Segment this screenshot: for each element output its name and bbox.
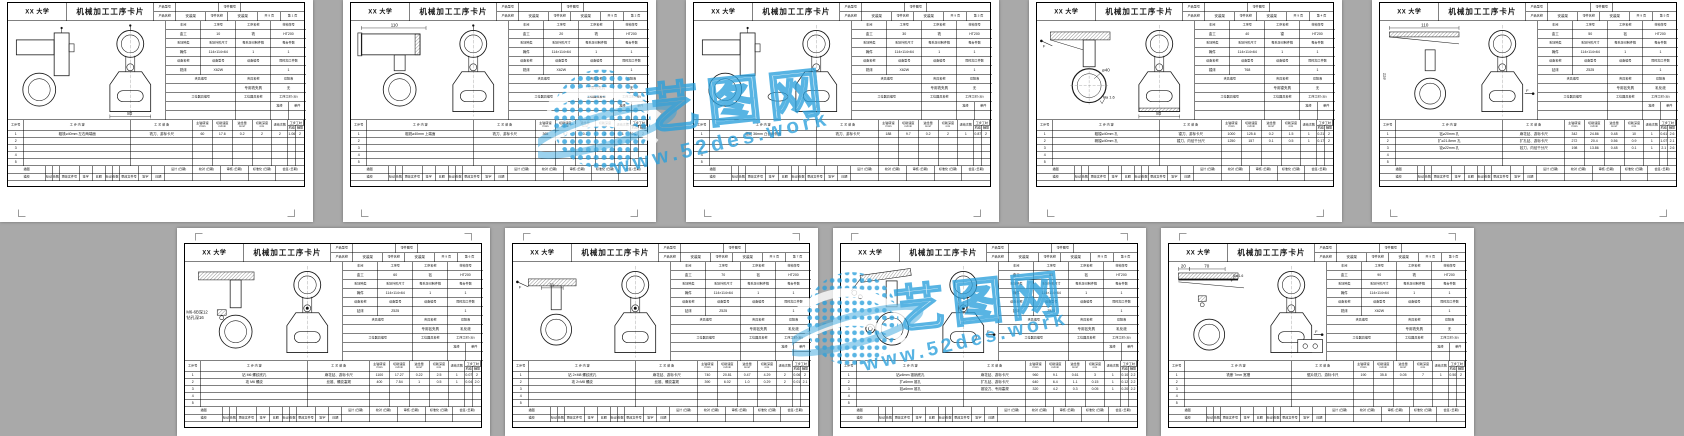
- step-passes: [1644, 159, 1660, 166]
- fixture-no-label: 夹具编号: [999, 316, 1069, 325]
- step-machine: 2.1: [1660, 145, 1668, 152]
- op-no-label: 工序号: [378, 262, 413, 271]
- standard-date-label: 标准化 (日期): [1277, 166, 1305, 174]
- step-passes: [958, 145, 974, 152]
- blank-cell: [1511, 166, 1524, 174]
- step-depth: [252, 138, 272, 145]
- check-date-label: 校对 (日期): [193, 166, 221, 174]
- date-label: 日期: [925, 415, 938, 422]
- product-model-label: 产品型号: [1526, 3, 1548, 12]
- step-content-header: 工 步 内 容: [367, 120, 474, 131]
- blank-cell: [922, 111, 957, 120]
- part-no-value: [1270, 3, 1333, 12]
- university-name: XX 大学: [351, 3, 410, 21]
- step-equipment: [636, 400, 698, 407]
- blank-type-label: 毛坯种类: [509, 39, 544, 48]
- fixture-name-value: 专用铣夹具: [922, 84, 957, 93]
- steps-header: 工步号 工 步 内 容 工 艺 装 备 主轴转速r/min 切削速度m/min …: [1380, 120, 1676, 131]
- document-page[interactable]: XX 大学 机械加工工序卡片 产品型号 零件图号 产品名称 安装架 零件名称: [0, 0, 313, 222]
- part-name-value: 安装架: [1257, 12, 1287, 21]
- blank-cell: [962, 174, 990, 181]
- card-title: 机械加工工序卡片: [410, 3, 497, 21]
- blank-cell: [746, 166, 766, 174]
- step-speed: [1585, 152, 1605, 159]
- date-label: 日期: [1181, 174, 1194, 181]
- per-unit-label: 每台件数: [448, 280, 483, 289]
- step-machine: 0.06: [793, 372, 801, 379]
- document-page[interactable]: XX 大学 机械加工工序卡片 产品型号 零件图号 产品名称 安装架 零件名称: [1029, 0, 1342, 222]
- blank-cell: [670, 415, 698, 422]
- step-aux: 2.1: [1668, 138, 1676, 145]
- step-aux: [801, 393, 809, 400]
- footer-row-approvals: 描图 设计 (日期) 校对 (日期) 审核 (日期) 标准化 (日期) 会签 (: [513, 407, 809, 415]
- card-title: 机械加工工序卡片: [244, 244, 331, 262]
- step-feed: [1261, 145, 1281, 152]
- blank-cell: [423, 166, 436, 174]
- step-row: 5: [513, 400, 809, 407]
- step-depth: [252, 145, 272, 152]
- coolant-label: 切削液: [1432, 316, 1467, 325]
- step-machine: 1.06: [288, 131, 296, 138]
- step-machine: [631, 138, 639, 145]
- mark-label: 标记: [389, 174, 396, 181]
- process-info-table: 车间 工序号 工序名称 材料牌号 金工 20 铣 HT200 毛坯种类: [509, 21, 649, 120]
- step-feed: 0.22: [409, 372, 429, 379]
- count-label: 处数: [739, 174, 746, 181]
- simultaneous-value: 1: [1104, 307, 1139, 316]
- step-aux: 2: [801, 372, 809, 379]
- step-equipment: 镗刀、内径千分尺: [1160, 138, 1222, 145]
- step-feed: [409, 386, 429, 393]
- part-no-value: [1613, 3, 1676, 12]
- blank-cell: [1241, 407, 1254, 415]
- product-name-value: 安装架: [1337, 253, 1367, 262]
- blank-type-value: 铸件: [509, 48, 544, 57]
- per-unit-value: 1: [1104, 289, 1139, 298]
- blank-size-label: 毛坯外形尺寸: [1573, 39, 1608, 48]
- step-machine: [1121, 393, 1129, 400]
- part-name-value: 安装架: [405, 253, 435, 262]
- per-unit-label: 每台件数: [1643, 39, 1678, 48]
- check-date-label: 校对 (日期): [370, 407, 398, 415]
- step-content-header: 工 步 内 容: [710, 120, 817, 131]
- document-page[interactable]: XX 大学 机械加工工序卡片 产品型号 零件图号 产品名称 安装架 零件名称: [505, 228, 818, 436]
- date-label: 日期: [269, 415, 282, 422]
- tool-no-value: [999, 343, 1069, 352]
- step-spindle: [698, 386, 718, 393]
- op-name-label: 工序名称: [1397, 262, 1432, 271]
- op-no-value: 40: [1230, 30, 1265, 39]
- step-aux: 2.2: [1129, 386, 1137, 393]
- blank-cell: [851, 174, 879, 181]
- sign-label: 签字: [1109, 174, 1122, 181]
- step-speed: [1242, 152, 1262, 159]
- step-speed: [1374, 400, 1394, 407]
- blank-cell: [1207, 407, 1214, 415]
- step-machine: 0.12: [1121, 379, 1129, 386]
- step-depth: [1085, 400, 1105, 407]
- step-equipment: [131, 159, 193, 166]
- step-depth: 0.5: [1281, 138, 1301, 145]
- single-time-label: 单件: [1122, 343, 1140, 352]
- equip-name-value: 镗床: [1195, 66, 1230, 75]
- per-blank-value: 1: [236, 48, 271, 57]
- step-passes: 1: [1433, 372, 1449, 379]
- design-date-label: 设计 (日期): [851, 166, 879, 174]
- blank-cell: [791, 166, 798, 174]
- step-depth: [757, 386, 777, 393]
- step-row: 1粗铣⌀40mm 左右两端面铣刀、游标卡尺6017.60.2221.062: [8, 131, 304, 138]
- step-speed: [899, 152, 919, 159]
- op-name-value: 铣: [236, 30, 271, 39]
- step-equipment: [964, 393, 1026, 400]
- total-pages: 共 9 页: [435, 253, 458, 262]
- per-unit-label: 每台件数: [1300, 39, 1335, 48]
- step-depth: 7: [1413, 372, 1433, 379]
- step-equipment: [474, 138, 536, 145]
- blank-cell: [1452, 166, 1465, 174]
- simultaneous-label: 同时加工件数: [448, 298, 483, 307]
- prep-time-label: 准终: [1432, 343, 1450, 352]
- step-speed: 35.8: [1374, 372, 1394, 379]
- step-speed: [899, 138, 919, 145]
- trace-label: 描图: [694, 166, 732, 174]
- footer-row-changes: 描校 标记 处数 更改文件号 签字 日期 标记 处数 更改文件号 签字 日期: [351, 174, 647, 181]
- blank-cell: [282, 407, 289, 415]
- trace-check-label: 描校: [841, 415, 879, 422]
- blank-cell: [1273, 407, 1280, 415]
- op-name-label: 工序名称: [1265, 21, 1300, 30]
- blank-type-label: 毛坯种类: [1538, 39, 1573, 48]
- blank-cell: [453, 415, 481, 422]
- equip-no-value: [579, 66, 614, 75]
- equip-no-value: [741, 307, 776, 316]
- trace-label: 描图: [841, 407, 879, 415]
- step-feed: [1393, 400, 1413, 407]
- change-no-label: 更改文件号: [1280, 415, 1300, 422]
- blank-size-value: 114×114×64: [544, 48, 579, 57]
- step-passes: 1: [1105, 372, 1121, 379]
- page-number: 第 3 页: [967, 12, 990, 21]
- step-depth: [1624, 159, 1644, 166]
- change-no-label: 更改文件号: [1491, 174, 1511, 181]
- step-equipment-header: 工 艺 装 备: [817, 120, 879, 131]
- op-time-label: 工序工时 (分): [1300, 93, 1335, 102]
- process-card: XX 大学 机械加工工序卡片 产品型号 零件图号 产品名称 安装架 零件名称: [693, 2, 991, 187]
- step-spindle: 198: [1565, 145, 1585, 152]
- blank-cell: [1484, 166, 1491, 174]
- total-pages: 共 9 页: [601, 12, 624, 21]
- step-spindle: [370, 400, 390, 407]
- prep-time-label: 准终: [1300, 102, 1318, 111]
- blank-size-label: 毛坯外形尺寸: [706, 280, 741, 289]
- blank-cell: [694, 181, 990, 186]
- step-row: 2攻 2×M8 螺纹丝锥、螺纹塞规3906.021.00.2920.012.1: [513, 379, 809, 386]
- op-no-value: 50: [1573, 30, 1608, 39]
- step-equipment: [474, 152, 536, 159]
- step-machine: 0.17: [1317, 138, 1325, 145]
- tool-no-label: 工位器具编号: [1538, 93, 1608, 102]
- check-date-label: 校对 (日期): [1354, 407, 1382, 415]
- total-pages: 共 9 页: [258, 12, 281, 21]
- document-page[interactable]: XX 大学 机械加工工序卡片 产品型号 零件图号 产品名称 安装架 零件名称: [833, 228, 1146, 436]
- step-feed: 1: [409, 379, 429, 386]
- trace-label: 描图: [1380, 166, 1418, 174]
- step-aux: 2: [1457, 372, 1465, 379]
- mark-label: 标记: [732, 174, 739, 181]
- blank-cell: [237, 407, 257, 415]
- equip-name-value: 钻床: [671, 307, 706, 316]
- product-name-label: 产品名称: [1315, 253, 1337, 262]
- blank-cell: [1250, 174, 1278, 181]
- step-speed: 17.27: [390, 372, 410, 379]
- document-page[interactable]: XX 大学 机械加工工序卡片 产品型号 零件图号 产品名称 安装架 零件名称: [1372, 0, 1684, 222]
- step-row: 1铣断 7mm 宽槽锯片铣刀、游标卡尺19035.80.05710.502: [1169, 372, 1465, 379]
- document-page[interactable]: XX 大学 机械加工工序卡片 产品型号 零件图号 产品名称 安装架 零件名称: [686, 0, 999, 222]
- step-no-header: 工步号: [185, 361, 201, 372]
- material-value: HT200: [1643, 30, 1678, 39]
- step-time-header: 工步工时 机动 辅助: [1121, 361, 1137, 372]
- prep-time-label: 准终: [1104, 343, 1122, 352]
- fixture-no-value: [1195, 84, 1265, 93]
- print-margin-mark: [793, 233, 801, 241]
- step-passes: 2: [777, 372, 793, 379]
- process-info-table: 车间 工序号 工序名称 材料牌号 金工 60 钻 HT200 毛坯种类: [343, 262, 483, 361]
- step-row: 1粗铣⌀40mm 上端面铣刀、游标卡尺3659.70.2210.642: [351, 131, 647, 138]
- countersign-date-label: 会签 (日期): [453, 407, 481, 415]
- blank-cell: [1418, 166, 1425, 174]
- step-aux: [296, 152, 304, 159]
- step-machine: [1317, 152, 1325, 159]
- date-label: 日期: [1524, 174, 1537, 181]
- step-machine: [1121, 400, 1129, 407]
- process-card: XX 大学 机械加工工序卡片 产品型号 零件图号 产品名称 安装架 零件名称: [840, 243, 1138, 428]
- equip-no-label: 设备编号: [413, 298, 448, 307]
- prep-time-label: 准终: [448, 343, 466, 352]
- tool-no-label: 工位器具编号: [509, 93, 579, 102]
- step-spindle: 272: [1565, 138, 1585, 145]
- step-spindle: [1026, 393, 1046, 400]
- step-passes: 1: [449, 379, 465, 386]
- change-no-label: 更改文件号: [1432, 174, 1452, 181]
- step-passes: [958, 138, 974, 145]
- step-spindle: [1354, 400, 1374, 407]
- product-model-value: [353, 244, 396, 253]
- step-machine: 0.87: [974, 131, 982, 138]
- svg-text:110: 110: [1421, 22, 1429, 27]
- step-depth: [595, 138, 615, 145]
- step-machine: [631, 145, 639, 152]
- document-page[interactable]: XX 大学 机械加工工序卡片 产品型号 零件图号 产品名称 安装架 零件名称: [343, 0, 656, 222]
- print-margin-mark: [361, 210, 369, 218]
- fixture-no-label: 夹具编号: [1195, 75, 1265, 84]
- step-content: 精镗⌀40mm 孔: [1053, 138, 1160, 145]
- step-spindle: [536, 159, 556, 166]
- sign-label: 签字: [825, 174, 838, 181]
- part-name-label: 零件名称: [206, 12, 228, 21]
- fixture-name-label: 夹具名称: [1397, 316, 1432, 325]
- blank-cell: [139, 166, 152, 174]
- step-spindle: [1354, 379, 1374, 386]
- step-no-header: 工步号: [1037, 120, 1053, 131]
- footer-row-approvals: 描图 设计 (日期) 校对 (日期) 审核 (日期) 标准化 (日期) 会签 (: [351, 166, 647, 174]
- steps-header: 工步号 工 步 内 容 工 艺 装 备 主轴转速r/min 切削速度m/min …: [694, 120, 990, 131]
- step-content: [1185, 400, 1292, 407]
- blank-cell: [1593, 174, 1621, 181]
- trace-label: 描图: [1037, 166, 1075, 174]
- fixture-no-value: [1327, 325, 1397, 334]
- blank-cell: [945, 407, 952, 415]
- sign-label: 签字: [482, 174, 495, 181]
- blank-cell: [1266, 407, 1273, 415]
- design-date-label: 设计 (日期): [165, 166, 193, 174]
- blank-size-value: 114×114×64: [1034, 289, 1069, 298]
- step-passes: [272, 152, 288, 159]
- step-no: 1: [513, 372, 529, 379]
- step-equipment-header: 工 艺 装 备: [1503, 120, 1565, 131]
- document-page[interactable]: XX 大学 机械加工工序卡片 产品型号 零件图号 产品名称 安装架 零件名称: [1161, 228, 1474, 436]
- op-no-label: 工序号: [706, 262, 741, 271]
- workshop-value: 金工: [671, 271, 706, 280]
- print-margin-mark: [1317, 210, 1325, 218]
- standard-date-label: 标准化 (日期): [1409, 407, 1437, 415]
- footer-row-blank: [1169, 422, 1465, 427]
- change-no-label: 更改文件号: [60, 174, 80, 181]
- blank-cell: [351, 181, 647, 186]
- step-equipment-header: 工 艺 装 备: [1160, 120, 1222, 131]
- equip-no-label: 设备编号: [1069, 298, 1104, 307]
- part-drawing: 2070Ra 1.6F: [1169, 262, 1327, 361]
- coolant-value: 乳化液: [776, 325, 811, 334]
- trace-check-label: 描校: [185, 415, 223, 422]
- step-content: [1185, 386, 1292, 393]
- step-no: 4: [351, 152, 367, 159]
- step-content: [1185, 379, 1292, 386]
- step-passes: [615, 152, 631, 159]
- blank-type-value: 铸件: [166, 48, 201, 57]
- step-depth: 0.9: [1624, 138, 1644, 145]
- step-feed: [575, 145, 595, 152]
- step-speed: 20.4: [1585, 138, 1605, 145]
- step-equipment: [131, 152, 193, 159]
- blank-type-label: 毛坯种类: [166, 39, 201, 48]
- step-time-header: 工步工时 机动 辅助: [631, 120, 647, 131]
- equip-model-value: X62W: [1362, 307, 1397, 316]
- op-no-value: 60: [378, 271, 413, 280]
- step-aux: [296, 145, 304, 152]
- step-machine: [288, 145, 296, 152]
- step-no-header: 工步号: [1169, 361, 1185, 372]
- step-feed: [1261, 152, 1281, 159]
- step-passes: 1: [1644, 138, 1660, 145]
- step-aux: 2.0: [473, 379, 481, 386]
- trace-label: 描图: [185, 407, 223, 415]
- blank-type-value: 铸件: [1538, 48, 1573, 57]
- product-name-value: 安装架: [1548, 12, 1578, 21]
- spindle-header: 主轴转速r/min: [1354, 361, 1374, 372]
- mark-label: 标记: [105, 174, 112, 181]
- step-no: 4: [1169, 393, 1185, 400]
- step-equipment: [131, 138, 193, 145]
- simultaneous-label: 同时加工件数: [1300, 57, 1335, 66]
- equip-no-value: [1265, 66, 1300, 75]
- step-time-header: 工步工时 机动 辅助: [288, 120, 304, 131]
- single-time-label: 单件: [975, 102, 993, 111]
- step-passes: [1433, 386, 1449, 393]
- equip-name-label: 设备名称: [1327, 298, 1362, 307]
- step-no: 1: [1380, 131, 1396, 138]
- coolant-value: 无: [271, 84, 306, 93]
- step-passes: [449, 400, 465, 407]
- equip-model-value: T68: [1230, 66, 1265, 75]
- fixture-no-value: [999, 325, 1069, 334]
- step-feed: 0.2: [918, 131, 938, 138]
- count-label: 处数: [53, 174, 60, 181]
- step-content: 钻⌀6mm 锥销底孔: [857, 372, 964, 379]
- simultaneous-value: 1: [957, 66, 992, 75]
- blank-cell: [248, 174, 276, 181]
- equip-name-label: 设备名称: [509, 57, 544, 66]
- material-value: HT200: [614, 30, 649, 39]
- svg-text:20: 20: [1181, 263, 1186, 268]
- tool-name-label: 工位器具名称: [579, 93, 614, 102]
- equip-model-label: 设备型号: [1230, 57, 1265, 66]
- step-speed: [1585, 159, 1605, 166]
- card-title: 机械加工工序卡片: [67, 3, 154, 21]
- step-content: [1053, 152, 1160, 159]
- coolant-label: 切削液: [1643, 75, 1678, 84]
- step-speed: 7.54: [390, 379, 410, 386]
- steps-header: 工步号 工 步 内 容 工 艺 装 备 主轴转速r/min 切削速度m/min …: [513, 361, 809, 372]
- step-passes: [1433, 400, 1449, 407]
- workshop-label: 车间: [999, 262, 1034, 271]
- print-margin-mark: [523, 233, 531, 241]
- fixture-no-value: [343, 325, 413, 334]
- footer-row-approvals: 描图 设计 (日期) 校对 (日期) 审核 (日期) 标准化 (日期) 会签 (: [694, 166, 990, 174]
- single-time-value: [975, 111, 993, 120]
- document-page[interactable]: XX 大学 机械加工工序卡片 产品型号 零件图号 产品名称 安装架 零件名称: [177, 228, 490, 436]
- step-depth: 10: [1624, 131, 1644, 138]
- step-speed: 125.6: [1242, 131, 1262, 138]
- blank-cell: [698, 415, 726, 422]
- step-row: 4: [513, 393, 809, 400]
- change-no-label: 更改文件号: [237, 415, 257, 422]
- op-name-label: 工序名称: [1069, 262, 1104, 271]
- spindle-header: 主轴转速r/min: [1026, 361, 1046, 372]
- coolant-label: 切削液: [1104, 316, 1139, 325]
- blank-cell: [825, 166, 838, 174]
- step-spindle: [1222, 145, 1242, 152]
- step-feed: [575, 138, 595, 145]
- blank-type-value: 铸件: [852, 48, 887, 57]
- material-label: 材料牌号: [271, 21, 306, 30]
- prep-time-label: 准终: [1643, 102, 1661, 111]
- step-machine: [465, 386, 473, 393]
- count-label: 处数: [1214, 415, 1221, 422]
- blank-cell: [46, 166, 53, 174]
- workshop-label: 车间: [166, 21, 201, 30]
- audit-date-label: 审核 (日期): [1054, 407, 1082, 415]
- fixture-name-value: 专用铣夹具: [1397, 325, 1432, 334]
- blank-size-label: 毛坯外形尺寸: [378, 280, 413, 289]
- feed-header: 进给量mm/r: [1604, 120, 1624, 131]
- trace-check-label: 描校: [1169, 415, 1207, 422]
- sign-label: 签字: [644, 415, 657, 422]
- equip-no-label: 设备编号: [741, 298, 776, 307]
- step-content: 扩⌀6mm 锥孔: [857, 379, 964, 386]
- passes-header: 进给次数: [1301, 120, 1317, 131]
- step-passes: [1433, 379, 1449, 386]
